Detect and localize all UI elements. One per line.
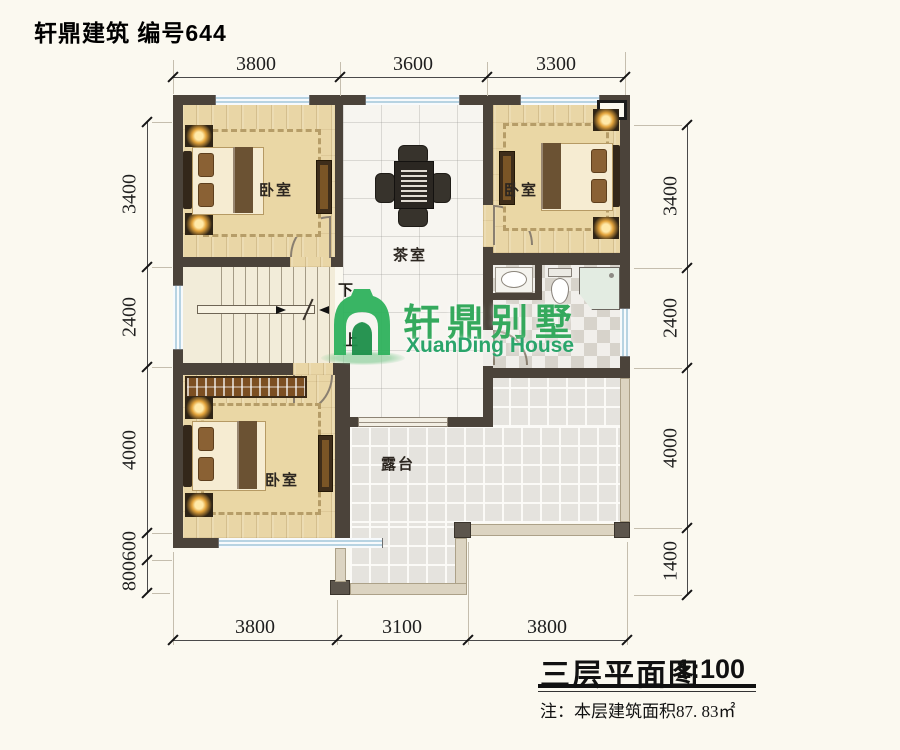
shower-head-icon: [609, 273, 614, 278]
stair-treads: [221, 267, 335, 363]
window-stairs: [173, 285, 183, 350]
parapet-south-main: [470, 524, 617, 536]
dimension-line-top: [173, 77, 625, 78]
nightstand-lamp: [593, 217, 619, 239]
parapet-east: [620, 378, 630, 522]
extension-line: [152, 533, 172, 534]
wardrobe: [316, 160, 332, 214]
window-bedroom1: [215, 95, 310, 105]
wall-stub-left: [350, 417, 358, 427]
dim-left-5: 800: [119, 561, 142, 591]
door-leaf-bedroom2: [493, 205, 495, 245]
dim-left-3: 4000: [119, 430, 142, 470]
extension-line: [340, 62, 341, 96]
wall-bedroom1-tea: [335, 95, 343, 260]
parapet-post: [454, 522, 471, 538]
extension-line: [634, 368, 682, 369]
room-label-bedroom2: 卧室: [504, 179, 538, 200]
chair: [431, 173, 451, 203]
dim-right-2: 2400: [660, 298, 683, 338]
green-arch-house-icon: [325, 285, 399, 359]
dim-right-3: 4000: [660, 428, 683, 468]
wall-bedroom3-east: [335, 363, 350, 548]
title-rule-thick: [538, 684, 756, 688]
pillow: [591, 179, 607, 203]
extension-line: [487, 62, 488, 96]
nightstand-lamp: [185, 493, 213, 517]
dim-left-4: 600: [119, 531, 142, 561]
dim-bottom-1: 3800: [235, 616, 275, 639]
sink-basin: [501, 271, 527, 288]
dim-right-1: 3400: [660, 176, 683, 216]
parapet-step-east: [455, 538, 467, 585]
extension-line: [627, 542, 628, 645]
drawing-scale: 1:100: [676, 654, 745, 685]
room-label-terrace: 露台: [381, 453, 415, 474]
nightstand-lamp: [185, 125, 213, 147]
bed-blanket: [541, 143, 561, 209]
dim-right-4: 1400: [660, 541, 683, 581]
stair-rail: [197, 305, 315, 314]
room-label-bedroom3: 卧室: [265, 469, 299, 490]
pillow: [591, 149, 607, 173]
dim-top-2: 3600: [393, 53, 433, 76]
nightstand-lamp: [185, 397, 213, 419]
extension-line: [152, 593, 170, 594]
extension-line: [152, 367, 172, 368]
tea-table: [394, 161, 434, 209]
wall-bathroom-north: [483, 253, 630, 265]
window-bedroom3: [218, 538, 383, 548]
extension-line: [634, 595, 682, 596]
nightstand-lamp: [185, 213, 213, 235]
extension-line: [634, 528, 682, 529]
bed-blanket: [237, 421, 257, 489]
window-tea-room: [365, 95, 460, 105]
parapet-post: [330, 580, 350, 595]
parapet-west-lower: [335, 548, 346, 582]
pillow: [198, 183, 214, 207]
page-title: 轩鼎建筑 编号644: [34, 14, 227, 48]
wardrobe: [318, 435, 333, 492]
dim-bottom-3: 3800: [527, 616, 567, 639]
parapet-south-lower: [350, 583, 467, 595]
extension-line: [152, 267, 172, 268]
room-label-bedroom1: 卧室: [259, 179, 293, 200]
doorway-bedroom3: [293, 363, 333, 375]
dim-top-3: 3300: [536, 53, 576, 76]
terrace-floor-lower: [350, 523, 455, 585]
doorway-bedroom1: [290, 257, 331, 267]
doorway-bedroom2: [483, 205, 493, 247]
extension-line: [152, 560, 172, 561]
dimension-line-bottom: [173, 640, 627, 641]
floor-plan-page: 轩鼎建筑 编号644: [0, 0, 900, 750]
dim-left-2: 2400: [119, 297, 142, 337]
toilet-tank: [548, 268, 572, 277]
sliding-door-terrace: [358, 417, 448, 427]
stair-arrow: [276, 306, 286, 314]
window-bathroom: [620, 308, 630, 357]
dim-left-1: 3400: [119, 174, 142, 214]
closet-clothes: [185, 376, 307, 398]
pillow: [198, 457, 214, 481]
title-rule-thin: [538, 691, 756, 692]
extension-line: [152, 122, 172, 123]
chair: [375, 173, 395, 203]
terrace-floor-main: [350, 427, 620, 523]
extension-line: [634, 125, 682, 126]
parapet-post: [614, 522, 630, 538]
wall-bathroom-south: [483, 368, 630, 378]
window-bedroom2: [520, 95, 600, 105]
extension-line: [634, 268, 682, 269]
dim-top-1: 3800: [236, 53, 276, 76]
bed-blanket: [233, 147, 253, 213]
pillow: [198, 153, 214, 177]
logo-text-en: XuanDing House: [406, 334, 574, 358]
extension-line: [173, 552, 174, 645]
room-label-tea: 茶室: [393, 244, 427, 265]
extension-line: [468, 542, 469, 645]
door-leaf-bedroom1: [329, 216, 331, 258]
dimension-line-left: [147, 122, 148, 593]
terrace-floor-upper: [490, 378, 620, 427]
dim-bottom-2: 3100: [382, 616, 422, 639]
bed-headboard: [183, 425, 192, 487]
chair: [398, 207, 428, 227]
wall-stub-slidedoor: [448, 417, 483, 427]
area-note: 注：本层建筑面积87. 83㎡: [540, 697, 736, 722]
pillow: [198, 427, 214, 451]
bed-headboard: [183, 151, 192, 209]
nightstand-lamp: [593, 109, 619, 131]
floor-plan: 下 上 卧室 卧室 卧室 茶室 露台 轩鼎别墅 XuanDing House: [173, 95, 630, 597]
